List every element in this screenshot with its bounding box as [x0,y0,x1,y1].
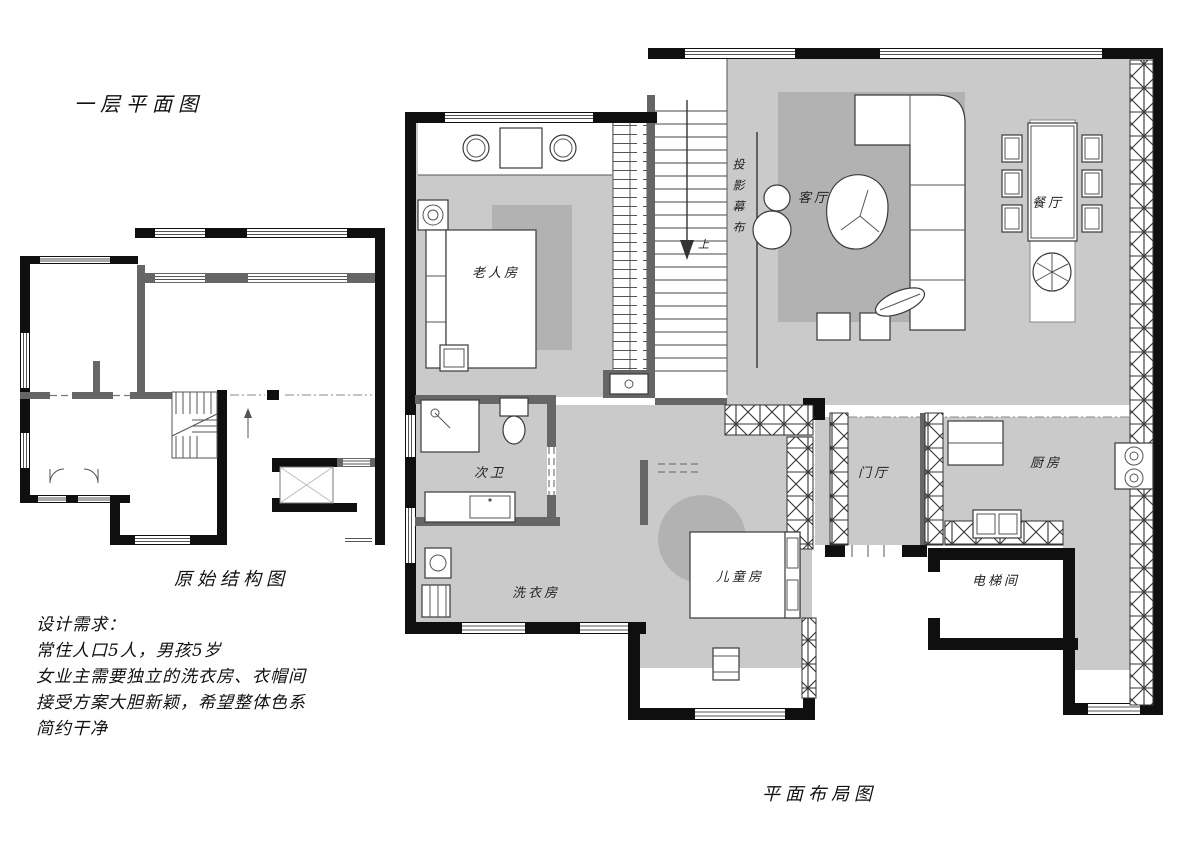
window [155,274,205,282]
window [21,333,29,388]
large-plan-caption: 平面布局图 [762,780,877,806]
layout-plan-drawing [400,40,1170,730]
kids-desk [713,648,739,680]
elevator-shaft [272,458,375,544]
elevator-door-opening [928,572,940,618]
window [406,508,415,563]
design-requirements: 设计需求： 常住人口5人，男孩5岁 女业主需要独立的洗衣房、衣帽间 接受方案大胆… [36,612,306,742]
shower [421,400,479,452]
label-dining-room: 餐厅 [1032,192,1064,211]
window [248,274,347,282]
window [135,536,190,544]
hall-cabinet [725,405,813,435]
label-foyer: 门厅 [858,462,890,481]
window [40,257,110,263]
window [880,49,1102,58]
window [155,229,205,237]
ottoman [817,313,850,340]
original-structure-plan [20,228,390,548]
label-elder-bedroom: 老人房 [472,262,520,281]
label-projection-screen: 投影幕布 [730,158,747,242]
requirements-line: 简约干净 [36,716,306,742]
window [247,229,347,237]
foyer-kitchen-divider-cabinet [925,413,943,545]
tall-cabinet-column [1130,60,1153,705]
pouf [764,185,790,211]
requirements-line: 常住人口5人，男孩5岁 [36,638,306,664]
pouf [753,211,791,249]
wardrobe-closet [613,95,655,397]
toilet-tank [500,398,528,416]
kids-wardrobe-bottom [802,618,816,698]
window [345,536,372,544]
label-kids-room: 儿童房 [716,566,764,585]
label-laundry-room: 洗衣房 [512,582,560,601]
dresser-table [500,128,542,168]
window [21,433,29,468]
washing-machine [425,548,451,578]
foyer-cabinet-left [830,413,848,545]
dining-table [1028,123,1077,241]
requirements-line: 女业主需要独立的洗衣房、衣帽间 [36,664,306,690]
label-second-bathroom: 次卫 [474,462,506,481]
entry-door-opening [845,545,902,557]
window [78,496,113,502]
window [343,459,370,466]
up-arrow [244,408,252,438]
bean-bag-chair [827,175,888,249]
requirements-line: 接受方案大胆新颖，希望整体色系 [36,690,306,716]
door-swings [50,469,98,483]
stair-base-basin [603,370,655,398]
small-plan-caption: 原始结构图 [174,565,289,591]
page-title: 一层平面图 [74,88,204,117]
balcony-window-wall [138,273,375,283]
stairs [655,58,727,395]
window [685,49,795,58]
label-elevator-room: 电梯间 [972,570,1020,589]
ottoman [860,313,890,340]
small-plan-stairs [172,392,217,458]
window [38,496,66,502]
floor-plan-sheet: 一层平面图 [0,0,1200,848]
window [695,709,785,719]
window [406,415,415,457]
label-living-room: 客厅 [798,187,830,206]
label-stairs-up: 上 [698,236,710,252]
requirements-heading: 设计需求： [36,612,306,638]
toilet-bowl [503,416,525,444]
window [445,113,593,122]
layout-plan: 老人房 投影幕布 客厅 上 餐厅 次卫 洗衣房 儿童房 门厅 厨房 电梯间 [400,40,1170,730]
label-kitchen: 厨房 [1030,452,1062,471]
window [462,623,525,633]
small-plan-interior-walls [20,265,372,399]
original-structure-drawing [20,228,390,548]
